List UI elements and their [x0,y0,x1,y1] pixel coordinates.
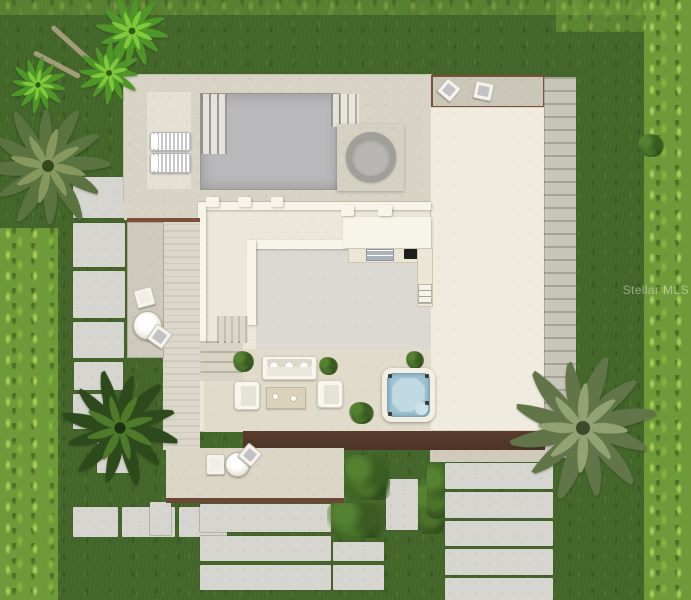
hot-tub-water [387,373,430,417]
chair-cushion [243,448,257,462]
paver-slab [445,521,553,546]
armchair-cushion [324,385,339,404]
house-north-wall [198,202,431,210]
courtyard-sofa [262,356,317,380]
kitchen-wall [343,217,431,248]
shrub-bed [427,461,445,519]
paver-slab [73,271,125,318]
refrigerator [418,284,432,304]
paver-slab [200,504,331,532]
palm-tree [493,338,674,519]
hot-tub-jet [388,374,392,378]
coffee-table [266,387,306,409]
watermark: Stellar MLS [615,283,689,297]
paver-slab [73,507,118,537]
bar-stool [206,197,219,207]
bar-stool [378,205,392,216]
shrub [638,134,664,157]
shrub-bed [327,503,386,538]
paver-slab [200,536,331,561]
potted-plant [406,351,424,369]
courtyard-armchair [234,381,260,410]
hot-tub-jet [425,374,429,378]
lounger-pillow [152,134,158,149]
round-spa [346,132,396,182]
scrub-grass-top-right [556,0,646,32]
scrub-grass-left [0,228,58,600]
lounger-pillow [152,155,158,171]
interior-stairs [217,316,248,343]
paver-slab [333,565,384,590]
sofa-seat [267,367,312,376]
table-dish [273,394,278,399]
scrub-grass-right [644,0,691,600]
chair-cushion [442,83,456,97]
bar-stool [271,197,283,207]
paver-slab [445,549,553,575]
paver-slab [200,565,331,590]
paver-slab [386,479,418,530]
chair-cushion [210,458,221,471]
porch-brown-edge [166,498,344,503]
chair-cushion [477,85,490,97]
square-hot-tub [382,368,435,422]
sofa-back-cushions [267,359,312,367]
porch-chair [206,454,225,475]
pool-steps [201,94,227,154]
armchair-cushion [241,386,256,406]
hot-tub-jet [425,401,429,405]
chair-cushion [152,329,167,344]
paver-slab [333,542,384,561]
pool-deck-extension [124,198,199,220]
interior-wall-vertical [247,240,256,325]
terrace-chair [472,80,494,102]
site-plan-rendering: Stellar MLS [0,0,691,600]
table-dish [291,396,296,401]
paver-slab [150,502,171,535]
potted-plant [319,357,338,375]
pool-lounger [150,153,191,173]
courtyard-armchair [317,380,343,408]
palm-tree [0,100,114,232]
potted-plant [349,402,374,424]
pool-steps [331,94,359,127]
potted-plant [233,351,254,372]
kitchen-sink [366,249,394,261]
great-room-floor [256,249,431,349]
shrub-bed [345,455,390,500]
pool-lounger [150,132,191,151]
paver-slab [445,578,553,600]
hot-tub-jet [388,412,392,416]
bar-stool [238,197,251,207]
chair-cushion [138,291,151,304]
patio-brown-edge [127,218,200,222]
bar-stool [341,205,354,216]
